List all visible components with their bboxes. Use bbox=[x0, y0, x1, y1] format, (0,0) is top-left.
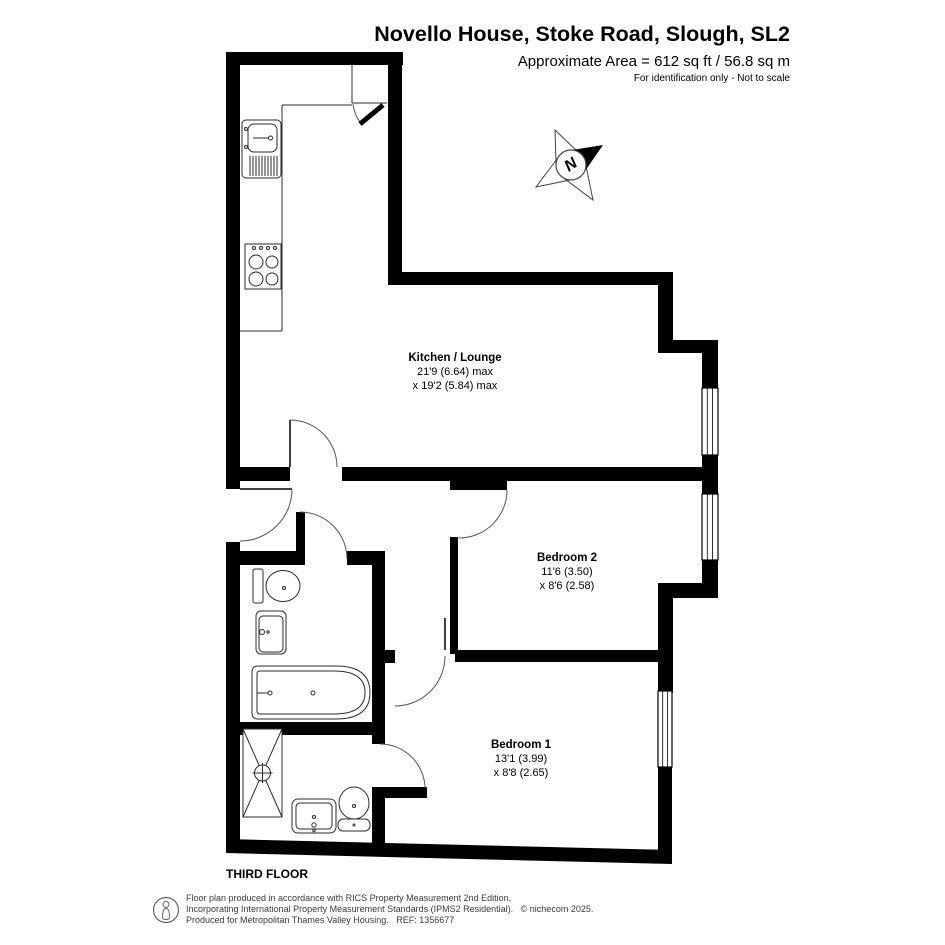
window-bedroom2 bbox=[702, 494, 718, 560]
area-text: Approximate Area = 612 sq ft / 56.8 sq m bbox=[518, 53, 790, 70]
wall-right-c bbox=[702, 453, 718, 496]
room-dim1: 13'1 (3.99) bbox=[495, 753, 547, 765]
room-name: Bedroom 1 bbox=[491, 739, 552, 751]
room-name: Bedroom 2 bbox=[537, 552, 597, 564]
door-hall-entrance bbox=[240, 489, 292, 541]
compass-icon: N bbox=[536, 130, 603, 200]
door-kitchen-lounge bbox=[290, 420, 337, 467]
door-bedroom2 bbox=[458, 481, 507, 538]
wall-left-upper bbox=[226, 52, 240, 489]
footer: Floor plan produced in accordance with R… bbox=[154, 893, 594, 925]
floor-plan: N Novello House, Stoke Road, Slough, SL2… bbox=[0, 0, 945, 945]
kitchen-sink bbox=[242, 120, 281, 178]
walls bbox=[226, 52, 718, 864]
wall-kitchen-right bbox=[388, 52, 402, 285]
room-label-bedroom2: Bedroom 2 11'6 (3.50) x 8'6 (2.58) bbox=[537, 552, 597, 592]
room-label-kitchen-lounge: Kitchen / Lounge 21'9 (6.64) max x 19'2 … bbox=[408, 352, 501, 392]
wall-shower-room-right bbox=[372, 798, 385, 847]
kitchen-hob bbox=[245, 244, 281, 289]
wall-bed2-left bbox=[450, 537, 458, 654]
footer-line2: Incorporating International Property Mea… bbox=[186, 904, 593, 914]
room-dim1: 21'9 (6.64) max bbox=[417, 366, 494, 378]
room-dim2: x 19'2 (5.84) max bbox=[413, 380, 498, 392]
shower-room-fixtures bbox=[243, 729, 370, 833]
window-kitchen bbox=[702, 388, 718, 455]
window-bedroom1 bbox=[658, 691, 672, 767]
door-shower-room bbox=[372, 744, 427, 798]
wall-right-e bbox=[658, 583, 673, 693]
wall-left-lower bbox=[226, 542, 240, 847]
wall-right-f bbox=[658, 765, 672, 857]
bathroom-fixtures bbox=[252, 569, 370, 719]
page-title: Novello House, Stoke Road, Slough, SL2 bbox=[374, 22, 790, 46]
wall-bottom bbox=[226, 839, 672, 864]
footer-line1: Floor plan produced in accordance with R… bbox=[186, 893, 511, 903]
footer-line3: Produced for Metropolitan Thames Valley … bbox=[186, 915, 454, 925]
wall-lounge-bottom-main bbox=[342, 467, 702, 481]
bathtub bbox=[252, 666, 370, 719]
wall-bathroom-right bbox=[372, 551, 385, 744]
wall-bedroom-divider bbox=[455, 650, 658, 662]
toilet-bathroom bbox=[253, 569, 300, 603]
wall-upper-horizontal bbox=[388, 272, 673, 285]
room-dim2: x 8'6 (2.58) bbox=[540, 580, 595, 592]
shower bbox=[243, 729, 282, 817]
toilet-shower-room bbox=[338, 787, 370, 831]
door-entrance-lobby bbox=[352, 65, 387, 124]
wall-right-a bbox=[658, 285, 673, 343]
floor-plan-page: N Novello House, Stoke Road, Slough, SL2… bbox=[0, 0, 945, 945]
wall-lounge-bottom-left bbox=[240, 467, 290, 481]
door-bathroom bbox=[296, 512, 347, 565]
wall-right-b bbox=[702, 340, 718, 390]
disclaimer-text: For identification only - Not to scale bbox=[634, 73, 791, 84]
room-label-bedroom1: Bedroom 1 13'1 (3.99) x 8'8 (2.65) bbox=[491, 739, 552, 779]
basin-shower-room bbox=[292, 799, 336, 833]
basin-bathroom bbox=[256, 611, 286, 654]
nichecom-logo-icon bbox=[154, 898, 179, 923]
room-name: Kitchen / Lounge bbox=[408, 352, 501, 364]
room-dim2: x 8'8 (2.65) bbox=[494, 767, 549, 779]
header: Novello House, Stoke Road, Slough, SL2 A… bbox=[374, 22, 790, 84]
wall-top bbox=[226, 52, 403, 65]
wall-bedroom-divider-stub bbox=[382, 650, 395, 663]
floor-label: THIRD FLOOR bbox=[226, 867, 308, 881]
door-bedroom1 bbox=[395, 618, 445, 706]
room-dim1: 11'6 (3.50) bbox=[541, 566, 592, 578]
wall-bed2-door-stub bbox=[450, 478, 458, 490]
wall-bathroom-top-left bbox=[226, 551, 296, 565]
kitchen-fixtures bbox=[240, 105, 352, 331]
